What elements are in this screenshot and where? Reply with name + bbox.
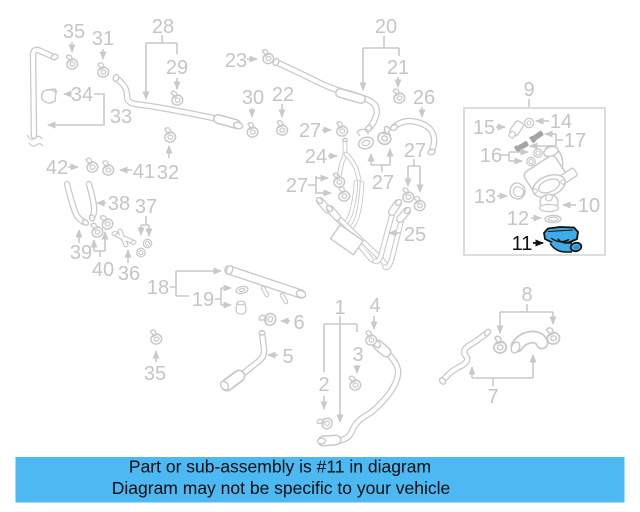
svg-text:39: 39 (70, 242, 92, 264)
svg-text:31: 31 (92, 28, 114, 50)
svg-text:28: 28 (152, 16, 174, 38)
svg-text:8: 8 (521, 284, 532, 306)
svg-text:5: 5 (282, 346, 293, 368)
svg-text:24: 24 (305, 146, 327, 168)
svg-text:4: 4 (369, 295, 380, 317)
svg-text:20: 20 (375, 16, 397, 38)
svg-text:12: 12 (507, 208, 529, 230)
svg-text:Diagram may not be specific to: Diagram may not be specific to your vehi… (112, 478, 450, 498)
svg-text:36: 36 (118, 263, 140, 285)
svg-text:32: 32 (157, 162, 179, 184)
svg-text:41: 41 (133, 161, 155, 183)
svg-text:13: 13 (474, 186, 496, 208)
svg-text:35: 35 (144, 363, 166, 385)
svg-text:18: 18 (147, 277, 169, 299)
svg-text:10: 10 (578, 195, 600, 217)
svg-text:33: 33 (110, 106, 132, 128)
svg-text:29: 29 (166, 57, 188, 79)
svg-text:42: 42 (46, 157, 68, 179)
svg-text:6: 6 (293, 312, 304, 334)
svg-text:38: 38 (108, 193, 130, 215)
svg-text:9: 9 (523, 79, 534, 101)
svg-text:23: 23 (225, 50, 247, 72)
svg-text:2: 2 (318, 374, 329, 396)
svg-text:21: 21 (387, 57, 409, 79)
svg-text:27: 27 (404, 140, 426, 162)
svg-text:30: 30 (242, 87, 264, 109)
svg-text:15: 15 (473, 117, 495, 139)
svg-text:26: 26 (413, 87, 435, 109)
svg-text:19: 19 (192, 289, 214, 311)
svg-text:3: 3 (352, 344, 363, 366)
svg-text:16: 16 (480, 145, 502, 167)
svg-text:1: 1 (334, 297, 345, 319)
svg-text:7: 7 (487, 386, 498, 408)
svg-text:40: 40 (92, 259, 114, 281)
svg-text:Part or sub-assembly is #11 in: Part or sub-assembly is #11 in diagram (129, 457, 431, 477)
svg-text:35: 35 (63, 21, 85, 43)
svg-text:11: 11 (512, 233, 533, 255)
svg-text:27: 27 (299, 120, 321, 142)
svg-text:27: 27 (286, 175, 308, 197)
svg-text:22: 22 (272, 84, 294, 106)
svg-text:17: 17 (564, 130, 586, 152)
svg-text:27: 27 (372, 172, 394, 194)
svg-text:25: 25 (404, 224, 426, 246)
svg-text:34: 34 (71, 84, 93, 106)
svg-text:37: 37 (135, 196, 157, 218)
